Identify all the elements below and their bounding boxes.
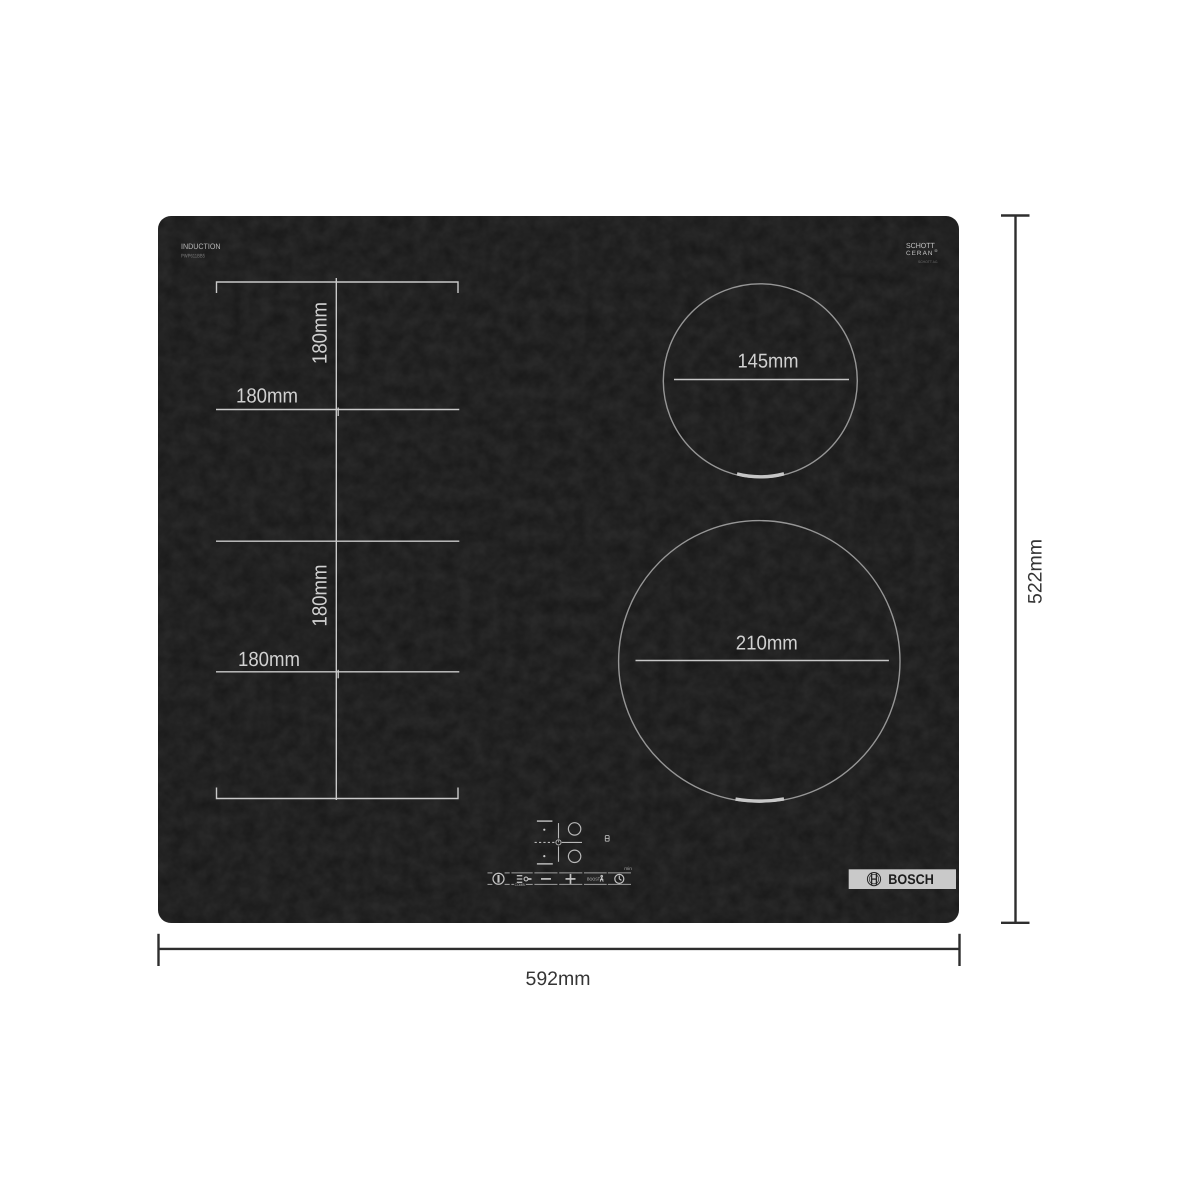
svg-text:180mm: 180mm [308,302,331,364]
svg-text:SCHOTT AG: SCHOTT AG [918,260,938,264]
svg-text:592mm: 592mm [525,968,590,990]
svg-text:180mm: 180mm [308,565,331,627]
svg-text:®: ® [935,248,938,253]
svg-text:BOOST: BOOST [587,877,600,882]
svg-text:min: min [624,866,632,871]
svg-text:145mm: 145mm [738,351,799,373]
svg-text:SCHOTT: SCHOTT [906,241,935,250]
svg-text:180mm: 180mm [238,648,300,671]
svg-text:CERAN: CERAN [906,250,934,257]
svg-text:210mm: 210mm [736,633,798,655]
svg-text:INDUCTION: INDUCTION [181,242,221,251]
svg-text:COMBI: COMBI [515,883,526,887]
svg-text:180mm: 180mm [236,385,298,408]
svg-text:PWP611BB5: PWP611BB5 [181,253,205,259]
svg-text:BOSCH: BOSCH [888,871,934,887]
svg-text:522mm: 522mm [1025,539,1047,604]
